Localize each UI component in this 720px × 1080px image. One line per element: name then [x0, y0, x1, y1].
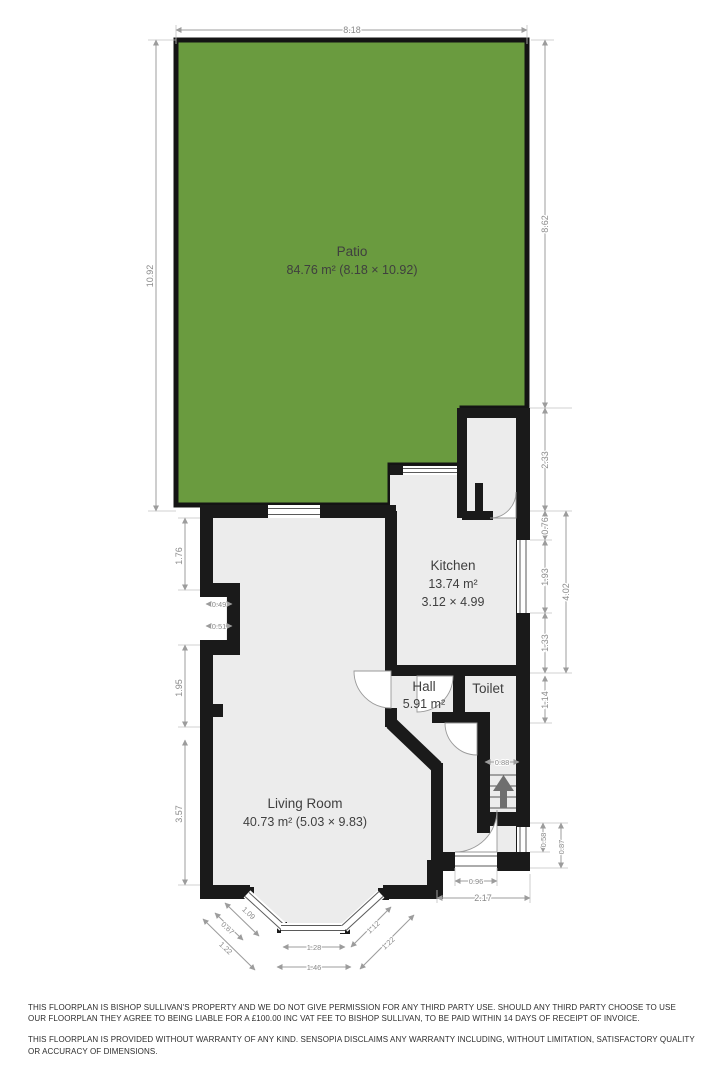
wall-toilet-bottom: [432, 712, 477, 723]
dim-left-lower: 3.57: [174, 805, 184, 823]
dim-niche-top: 0.49: [212, 600, 227, 609]
wall-pier: [200, 704, 223, 717]
kitchen-size-label: 3.12 × 4.99: [422, 595, 485, 609]
dim-niche-bottom: 0.51: [212, 622, 227, 631]
dim-kitchen-right-total: 4.02: [561, 583, 571, 601]
front-right-window: [517, 827, 530, 852]
living-rear-window: [268, 505, 320, 518]
wall-right-outer: [516, 408, 530, 871]
wall-toilet-left: [453, 676, 465, 712]
wall-living-right: [431, 763, 443, 863]
dim-patio-top: 8.18: [343, 25, 361, 35]
dim-front-right: 0.87: [557, 840, 566, 855]
living-room-label: Living Room: [267, 796, 342, 811]
kitchen-patio-window: [403, 466, 457, 475]
dim-toilet-right: 1.14: [540, 691, 550, 709]
dim-stairs-width: 0.88: [495, 758, 510, 767]
bay-window-front: [281, 923, 345, 933]
dim-front-window: 0.58: [539, 833, 548, 848]
dim-kitchen-window-above: 0.76: [540, 517, 550, 535]
toilet-label: Toilet: [472, 681, 504, 696]
disclaimer-property: THIS FLOORPLAN IS BISHOP SULLIVAN'S PROP…: [28, 1002, 696, 1024]
living-room-area-label: 40.73 m² (5.03 × 9.83): [243, 815, 367, 829]
wall-stairs-bottom: [477, 812, 530, 826]
wall-kitchen-bottom: [390, 665, 516, 676]
disclaimer-warranty: THIS FLOORPLAN IS PROVIDED WITHOUT WARRA…: [28, 1034, 696, 1056]
wall-niche-side: [227, 590, 240, 647]
dim-left-upper: 1.76: [174, 547, 184, 565]
wall-living-bottom-right: [383, 885, 438, 899]
dim-front-total: 2.17: [474, 893, 492, 903]
wall-left-outer: [200, 505, 213, 899]
wall-living-bottom-left: [200, 885, 250, 899]
dim-extension-right: 2.33: [540, 451, 550, 469]
dim-bay-front-outer: 1.46: [307, 963, 322, 972]
dim-kitchen-window-below: 1.33: [540, 634, 550, 652]
kitchen-area-label: 13.74 m²: [428, 577, 477, 591]
floorplan-canvas: 8.18 10.92 8.62 2.33 0.76 1.93 1.33 4.02…: [0, 0, 720, 1080]
dim-left-mid: 1.95: [174, 679, 184, 697]
dim-bay-right-outer: 1.22: [380, 935, 397, 952]
dim-front-door: 0.96: [469, 877, 484, 886]
dim-patio-right: 8.62: [540, 215, 550, 233]
wall-niche-bottom: [200, 640, 240, 655]
wall-extension-stub: [475, 483, 483, 518]
wall-kitchen-left: [385, 511, 397, 671]
kitchen-label: Kitchen: [430, 558, 475, 573]
patio-label: Patio: [337, 244, 368, 259]
dim-patio-left: 10.92: [145, 265, 155, 288]
dim-bay-left-mid: 0.67: [219, 920, 236, 937]
dim-kitchen-window: 1.93: [540, 568, 550, 586]
front-door-opening: [455, 852, 497, 871]
disclaimer: THIS FLOORPLAN IS BISHOP SULLIVAN'S PROP…: [28, 1002, 696, 1067]
dim-bay-left-outer: 1.22: [217, 940, 234, 957]
wall-extension-left: [457, 408, 467, 518]
dim-bay-right-inner: 1.12: [365, 919, 382, 936]
hall-label: Hall: [412, 679, 435, 694]
patio-area-label: 84.76 m² (8.18 × 10.92): [287, 263, 418, 277]
floorplan-page: 8.18 10.92 8.62 2.33 0.76 1.93 1.33 4.02…: [0, 0, 720, 1080]
dim-bay-front-inner: 1.28: [307, 943, 322, 952]
kitchen-right-window: [517, 540, 530, 613]
hall-area-label: 5.91 m²: [403, 697, 445, 711]
